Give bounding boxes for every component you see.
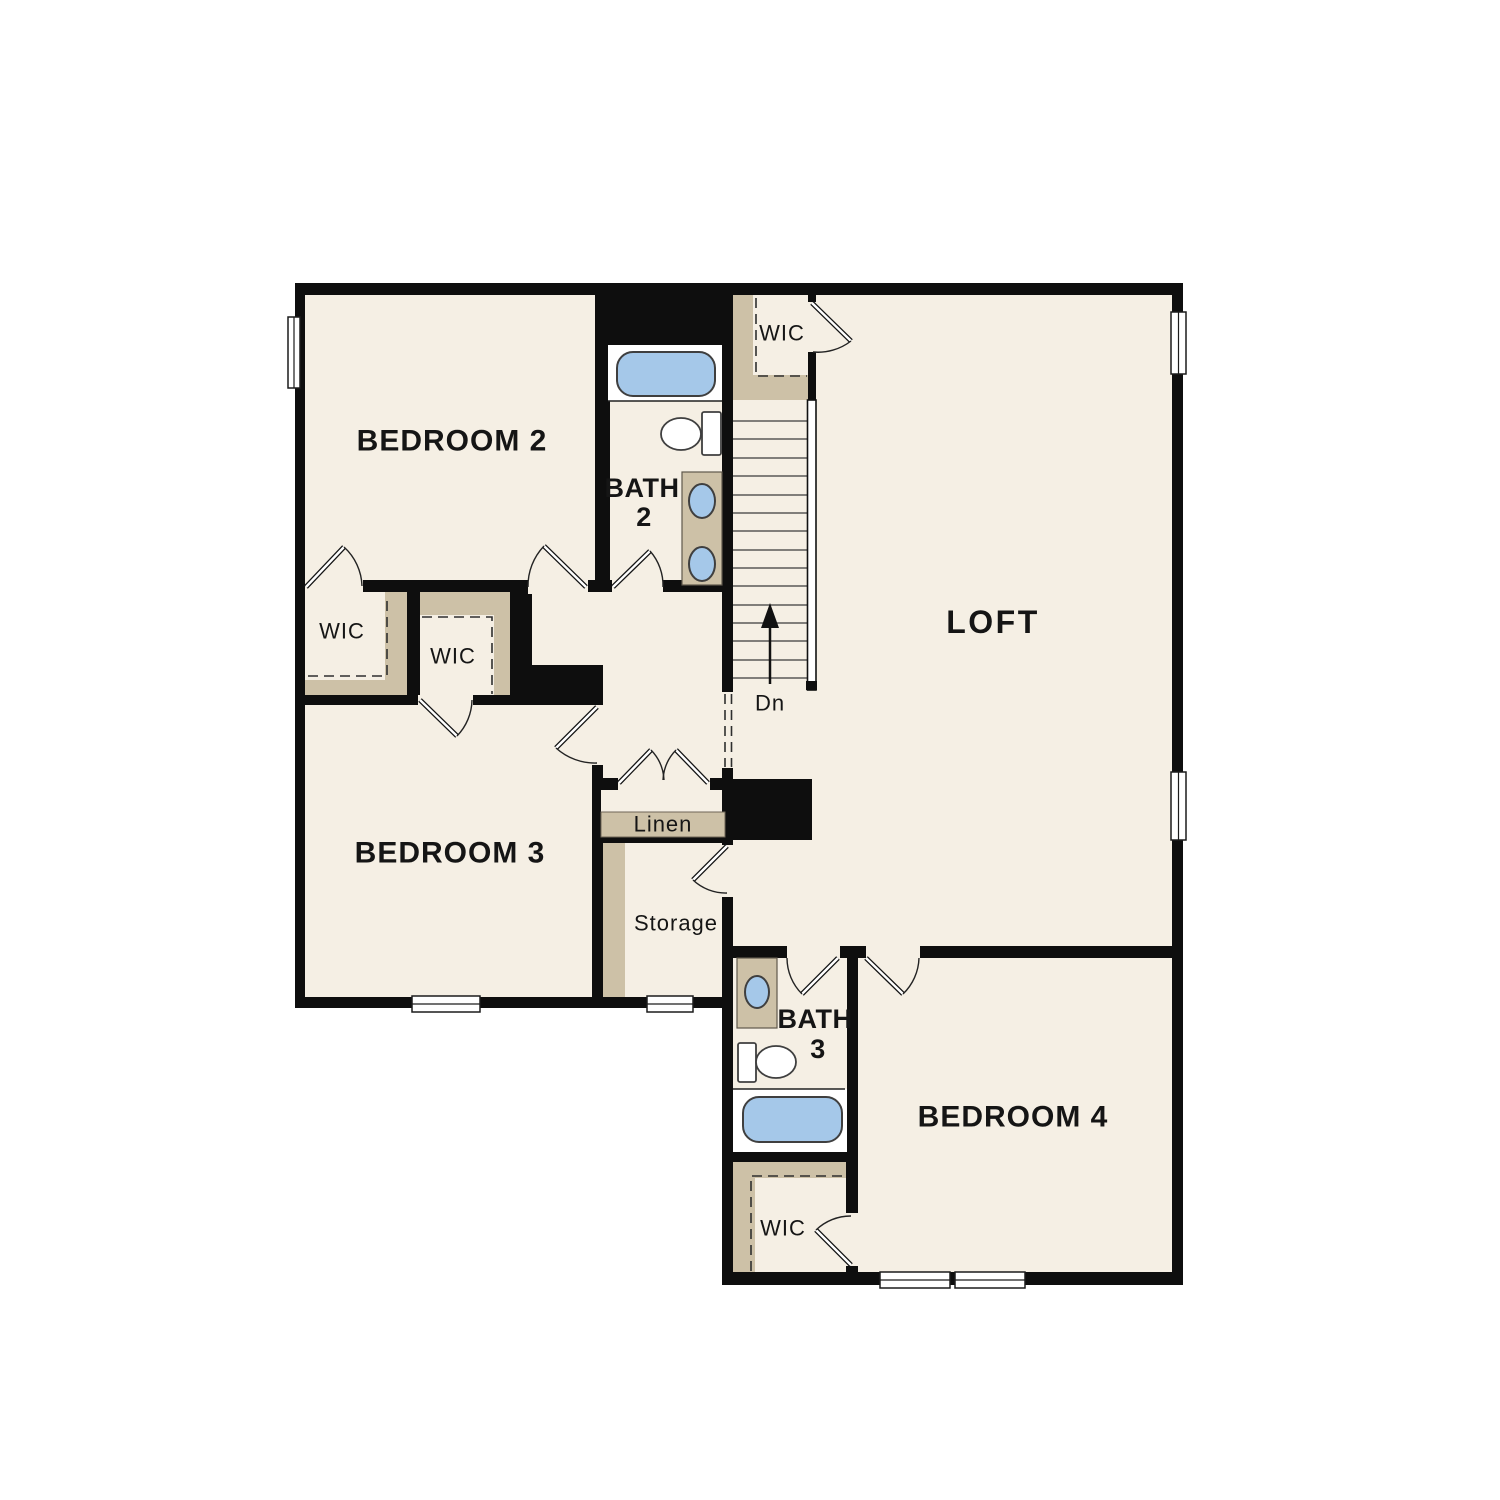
wic-bedroom4-label: WIC	[760, 1216, 806, 1241]
stair-railing-endcap	[806, 681, 817, 690]
bath-3-number-label: 3	[810, 1034, 826, 1064]
storage-shelf-left	[603, 843, 625, 997]
bath-2-sink-1-icon	[689, 484, 715, 518]
bedroom-2-label: BEDROOM 2	[357, 425, 548, 458]
wic-middle-label: WIC	[430, 644, 476, 669]
storage-label: Storage	[634, 911, 718, 936]
bath-3-sink-icon	[745, 976, 769, 1008]
linen-label: Linen	[634, 812, 693, 837]
wic-left-shelf-bottom	[305, 680, 385, 695]
bath-3-label: BATH	[778, 1004, 853, 1034]
wic-middle-shelf-right	[494, 615, 510, 695]
bath-3-toilet-icon	[756, 1046, 796, 1078]
stair-railing	[808, 400, 817, 690]
doorway-bath-3	[787, 946, 840, 958]
doorway-bedroom-3	[592, 705, 603, 765]
bath-2-toilet-icon	[661, 418, 701, 450]
loft-label: LOFT	[946, 604, 1040, 640]
bath-2-toilet-tank	[702, 412, 721, 455]
bedroom-3-label: BEDROOM 3	[355, 837, 546, 870]
wic-hall-label: WIC	[759, 321, 805, 346]
bath-3-bathtub-icon	[743, 1097, 842, 1142]
wic-hall-shelf-bottom	[753, 375, 808, 400]
wic-left-label: WIC	[319, 619, 365, 644]
bath-2-sink-2-icon	[689, 547, 715, 581]
wic-middle-shelf-top	[420, 592, 510, 615]
bath-2-bathtub-icon	[617, 352, 715, 396]
hallway-upper-floor	[532, 592, 722, 665]
floor-plan-page: BEDROOM 2 BATH 2 WIC LOFT WIC WIC BEDROO…	[0, 0, 1500, 1500]
floor-plan-drawing: BEDROOM 2 BATH 2 WIC LOFT WIC WIC BEDROO…	[0, 0, 1500, 1500]
doorway-wic-bedroom4	[846, 1213, 858, 1266]
bedroom-4-label: BEDROOM 4	[918, 1101, 1109, 1134]
stairs-down-label: Dn	[755, 691, 785, 716]
bath-3-toilet-tank	[738, 1043, 756, 1082]
wic-left-shelf-right	[385, 592, 407, 695]
doorway-bedroom-4	[866, 946, 920, 958]
hallway-lower-floor	[603, 665, 722, 778]
chase-wall-block	[730, 779, 812, 840]
interior-wall-details	[730, 779, 812, 840]
bath-2-number-label: 2	[636, 502, 652, 532]
wic-hall-shelf-left	[733, 295, 753, 400]
bath-2-label: BATH	[605, 473, 680, 503]
